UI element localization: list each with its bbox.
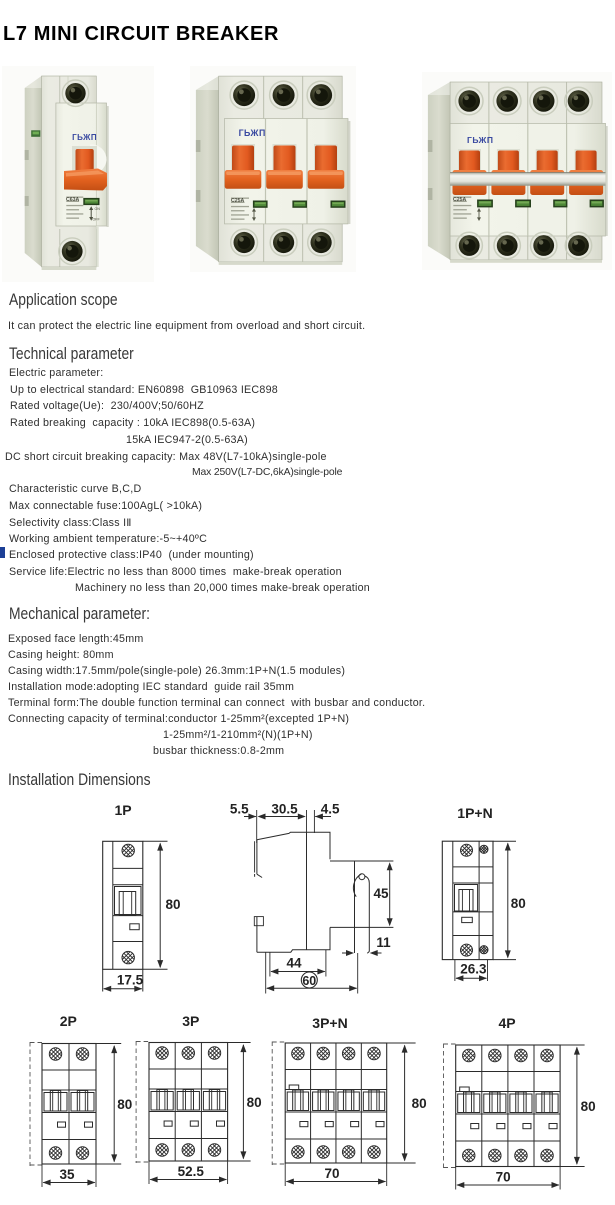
svg-text:80: 80 xyxy=(511,896,526,911)
svg-text:80: 80 xyxy=(117,1097,132,1112)
svg-text:1P+N: 1P+N xyxy=(457,805,492,821)
svg-text:80: 80 xyxy=(581,1099,596,1114)
svg-text:C25A: C25A xyxy=(231,198,245,204)
svg-text:C63A: C63A xyxy=(66,197,80,203)
svg-text:45: 45 xyxy=(373,886,389,901)
svg-text:4.5: 4.5 xyxy=(321,802,340,817)
svg-text:80: 80 xyxy=(166,897,181,912)
svg-text:2P: 2P xyxy=(60,1013,77,1029)
svg-text:C25A: C25A xyxy=(453,197,467,203)
svg-text:44: 44 xyxy=(286,956,302,971)
svg-text:17.5: 17.5 xyxy=(117,973,144,988)
svg-text:ON: ON xyxy=(95,207,101,211)
svg-text:11: 11 xyxy=(376,935,391,950)
svg-text:4P: 4P xyxy=(498,1015,515,1031)
svg-text:35: 35 xyxy=(59,1167,75,1182)
svg-text:OFF: OFF xyxy=(93,218,101,222)
svg-text:1P: 1P xyxy=(114,802,131,818)
svg-text:3P: 3P xyxy=(182,1013,199,1029)
svg-text:30.5: 30.5 xyxy=(271,802,298,817)
svg-text:70: 70 xyxy=(496,1170,511,1185)
svg-text:26.3: 26.3 xyxy=(460,962,487,977)
svg-text:52.5: 52.5 xyxy=(178,1164,205,1179)
svg-text:ГЬЖП: ГЬЖП xyxy=(72,133,97,142)
svg-text:3P+N: 3P+N xyxy=(312,1015,347,1031)
svg-text:ГЬЖП: ГЬЖП xyxy=(239,128,266,138)
svg-text:5.5: 5.5 xyxy=(230,802,249,817)
svg-text:70: 70 xyxy=(324,1166,339,1181)
svg-text:ГЬЖП: ГЬЖП xyxy=(467,135,493,145)
svg-text:80: 80 xyxy=(247,1095,262,1110)
svg-text:80: 80 xyxy=(412,1096,427,1111)
svg-text:60: 60 xyxy=(302,974,316,988)
